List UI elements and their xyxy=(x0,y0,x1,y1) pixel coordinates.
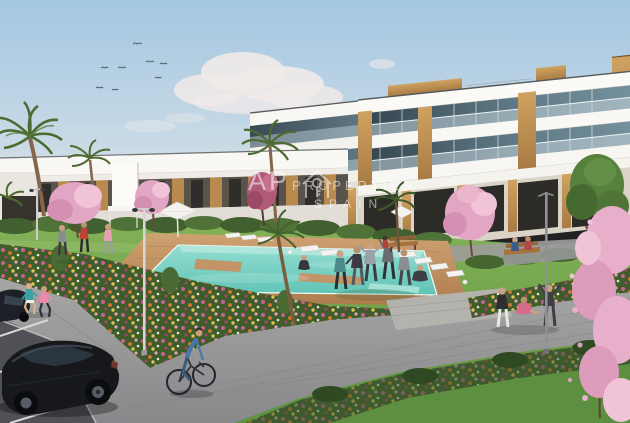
parked-car xyxy=(0,341,119,417)
render-image: AP PROPERTIES SPAIN xyxy=(0,0,630,423)
